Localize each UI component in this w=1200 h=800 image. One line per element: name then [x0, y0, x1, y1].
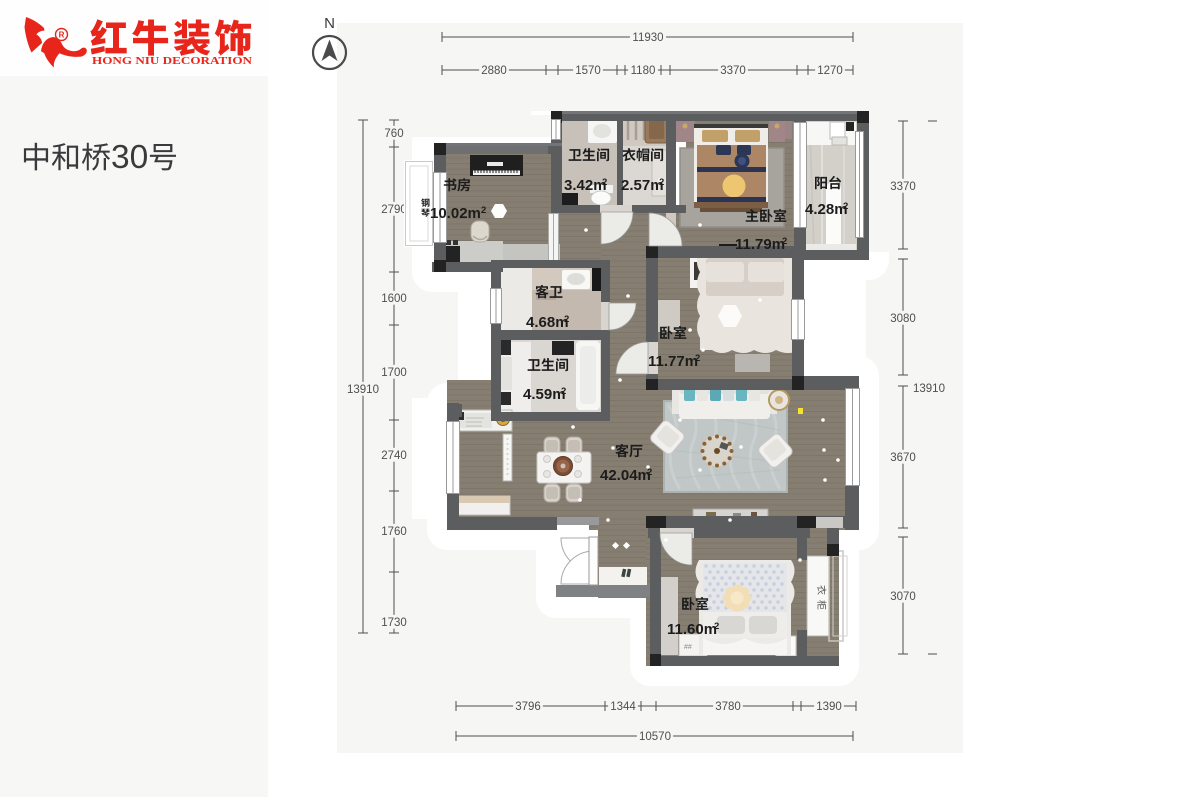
svg-text:2: 2: [561, 386, 566, 397]
svg-text:3796: 3796: [515, 701, 541, 713]
svg-text:2: 2: [564, 314, 569, 325]
svg-text:2: 2: [602, 177, 607, 188]
svg-text:1344: 1344: [610, 701, 636, 713]
svg-text:2880: 2880: [481, 65, 507, 77]
svg-text:3780: 3780: [715, 701, 741, 713]
svg-text:N: N: [324, 15, 335, 32]
svg-text:1760: 1760: [381, 526, 407, 538]
svg-text:760: 760: [384, 128, 403, 140]
svg-text:2: 2: [843, 201, 848, 212]
svg-text:3370: 3370: [720, 65, 746, 77]
svg-text:1600: 1600: [381, 293, 407, 305]
svg-text:3670: 3670: [890, 452, 916, 464]
svg-text:11.79m: 11.79m: [735, 236, 785, 253]
svg-text:42.04m: 42.04m: [600, 467, 651, 484]
svg-text:##: ##: [684, 644, 692, 651]
svg-text:13910: 13910: [913, 383, 945, 395]
svg-text:3070: 3070: [890, 591, 916, 603]
svg-text:R: R: [59, 31, 65, 40]
svg-text:2: 2: [695, 353, 700, 364]
svg-text:2: 2: [659, 177, 664, 188]
svg-text:30: 30: [111, 139, 148, 176]
svg-text:11930: 11930: [632, 32, 663, 44]
svg-text:2.57m: 2.57m: [621, 177, 664, 194]
svg-text:13910: 13910: [347, 384, 379, 396]
svg-text:2: 2: [481, 205, 486, 216]
svg-text:10570: 10570: [639, 731, 671, 743]
svg-text:11.77m: 11.77m: [648, 353, 698, 370]
svg-text:2790: 2790: [381, 204, 407, 216]
svg-text:2: 2: [647, 467, 652, 478]
svg-text:10.02m: 10.02m: [430, 205, 481, 222]
svg-text:1700: 1700: [381, 367, 407, 379]
svg-text:3.42m: 3.42m: [564, 177, 607, 194]
svg-text:4.59m: 4.59m: [523, 386, 566, 403]
svg-text:HONG NIU DECORATION: HONG NIU DECORATION: [92, 55, 252, 67]
svg-text:3080: 3080: [890, 313, 916, 325]
svg-text:1180: 1180: [631, 65, 656, 77]
svg-text:1730: 1730: [381, 617, 407, 629]
svg-text:4.68m: 4.68m: [526, 314, 569, 331]
svg-text:2: 2: [714, 621, 719, 632]
svg-text:2740: 2740: [381, 450, 407, 462]
svg-text:1390: 1390: [816, 701, 842, 713]
svg-text:1270: 1270: [817, 65, 843, 77]
svg-text:1570: 1570: [575, 65, 601, 77]
svg-text:2: 2: [782, 236, 787, 247]
svg-text:11.60m: 11.60m: [667, 621, 717, 638]
svg-text:4.28m: 4.28m: [805, 201, 848, 218]
svg-text:3370: 3370: [890, 181, 916, 193]
